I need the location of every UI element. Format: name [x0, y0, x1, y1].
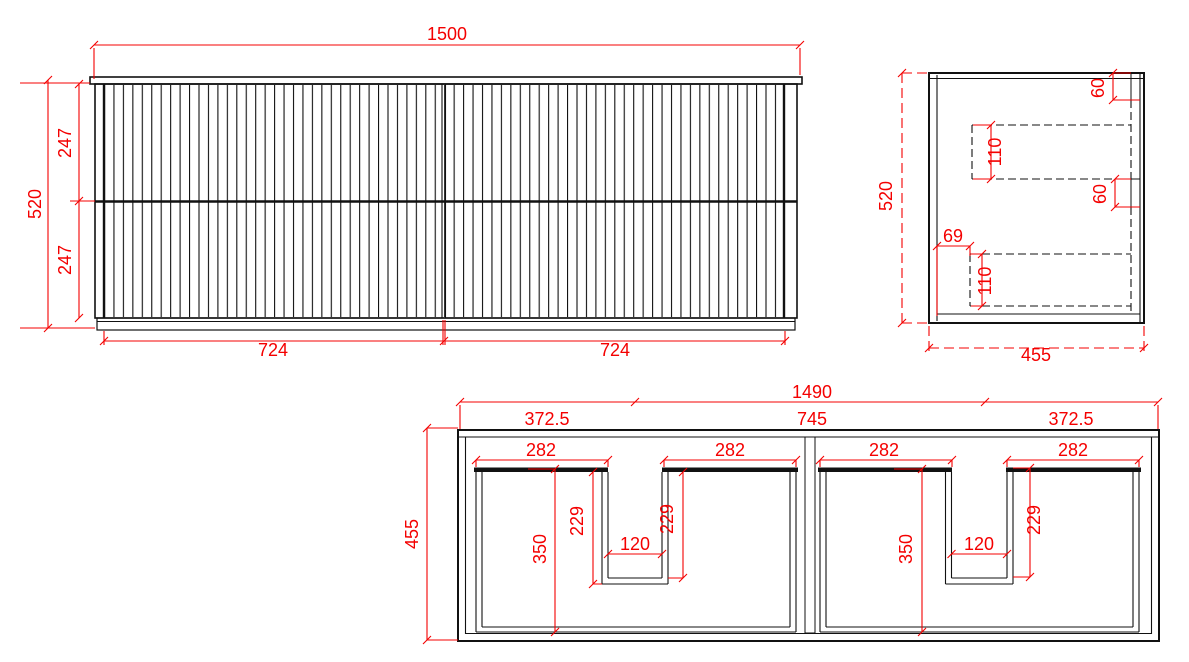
dim-lower-drawer-side: 110	[975, 267, 995, 296]
dim-notch-depth-2: 229	[657, 504, 677, 534]
plan-inner-walls	[458, 437, 1159, 634]
side-dimension-ticks	[898, 69, 1148, 352]
dim-plan-right-section: 372.5	[1048, 409, 1093, 429]
drawing-canvas: 1500 520 247 247 724 724 520 455 60 110 …	[0, 0, 1189, 662]
dim-drawer-depth-right: 350	[896, 534, 916, 564]
front-view: 1500 520 247 247 724 724	[20, 24, 804, 360]
dim-side-overall-depth: 455	[1021, 345, 1051, 365]
dim-front-overall-height: 520	[25, 189, 45, 219]
dim-notch-depth-3: 229	[1024, 505, 1044, 535]
dim-front-overall-width: 1500	[427, 24, 467, 44]
top-rail-section	[1131, 73, 1140, 100]
dim-plan-left-section: 372.5	[524, 409, 569, 429]
dim-upper-drawer-height: 247	[55, 128, 75, 158]
dim-shelf-width-4: 282	[1058, 440, 1088, 460]
plan-dimension-ticks	[423, 398, 1162, 644]
dim-notch-depth-1: 229	[567, 506, 587, 536]
dim-plan-overall-depth: 455	[402, 519, 422, 549]
dim-top-rail: 60	[1088, 78, 1108, 98]
dim-plan-middle-section: 745	[797, 409, 827, 429]
mid-rail-section	[1131, 179, 1140, 207]
dim-upper-drawer-side: 110	[985, 138, 1005, 167]
dim-notch-width-left: 120	[620, 534, 650, 554]
side-carcass	[929, 73, 1144, 323]
dim-notch-width-right: 120	[964, 534, 994, 554]
center-divider	[805, 437, 815, 633]
countertop	[90, 77, 802, 84]
dim-shelf-width-2: 282	[715, 440, 745, 460]
rail-bar	[662, 468, 798, 473]
dim-mid-rail: 60	[1090, 184, 1110, 204]
dim-shelf-width-3: 282	[869, 440, 899, 460]
dim-plan-overall-width: 1490	[792, 382, 832, 402]
plan-carcass	[458, 430, 1159, 641]
plan-view: 1490 372.5 745 372.5 455 282 282 282 282…	[402, 382, 1162, 644]
rail-bar	[474, 468, 608, 473]
bottom-panel	[97, 318, 795, 330]
drawer-back-rails	[474, 468, 1141, 473]
vanity-technical-drawing: 1500 520 247 247 724 724 520 455 60 110 …	[0, 0, 1189, 662]
dim-drawer-back-offset: 69	[943, 226, 963, 246]
dim-drawer-depth-left: 350	[530, 534, 550, 564]
dim-left-door-width: 724	[258, 340, 288, 360]
side-panel-lines	[929, 73, 1144, 323]
plan-dimension-lines	[427, 402, 1158, 640]
dim-lower-drawer-height: 247	[55, 245, 75, 275]
dim-shelf-width-1: 282	[526, 440, 556, 460]
rail-bar	[818, 468, 952, 473]
dim-right-door-width: 724	[600, 340, 630, 360]
side-view: 520 455 60 110 60 69 110	[876, 69, 1148, 365]
side-dimension-dashed-lines	[902, 73, 1144, 353]
dim-side-overall-height: 520	[876, 181, 896, 211]
